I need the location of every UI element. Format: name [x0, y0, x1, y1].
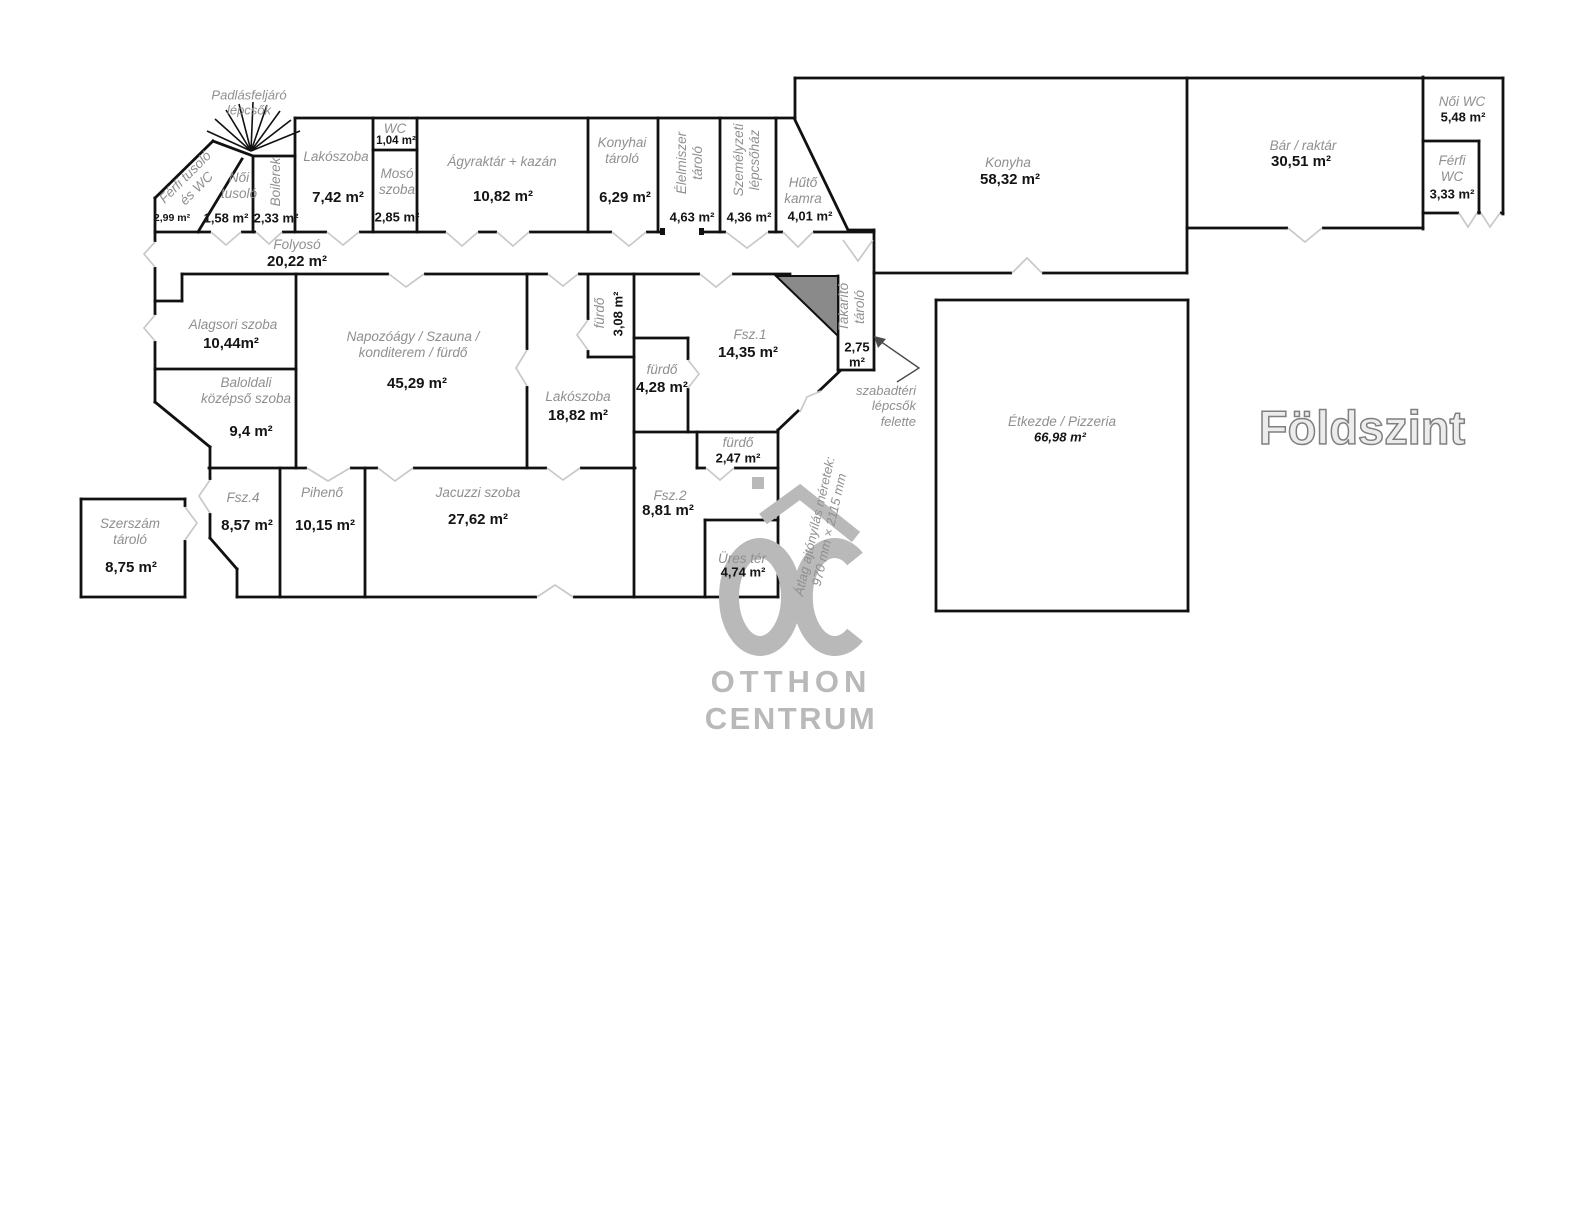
room-area-jacuzzi-szoba: 27,62 m²	[448, 511, 508, 529]
room-area-bar-raktar: 30,51 m²	[1271, 153, 1331, 171]
room-area-ferfi-tusolo: 2,99 m²	[154, 212, 190, 224]
room-name-noi-wc: Női WC	[1439, 94, 1486, 110]
room-name-elelmiszer-tarolo: Élelmiszer tároló	[674, 132, 706, 194]
room-area-noi-wc: 5,48 m²	[1441, 109, 1486, 124]
room-area-furdo-3: 2,47 m²	[716, 450, 761, 465]
watermark-line2: CENTRUM	[705, 701, 878, 736]
room-name-bar-raktar: Bár / raktár	[1270, 138, 1337, 154]
room-name-konyha: Konyha	[985, 155, 1031, 171]
room-area-piheno: 10,15 m²	[295, 517, 355, 535]
room-area-furdo-2: 4,28 m²	[636, 379, 688, 397]
room-name-jacuzzi-szoba: Jacuzzi szoba	[436, 485, 521, 501]
floor-title: Földszint	[1259, 401, 1466, 454]
room-area-konyhai-tarolo: 6,29 m²	[599, 189, 651, 207]
room-name-alagsori-szoba: Alagsori szoba	[189, 317, 278, 333]
room-area-wc: 1,04 m²	[376, 135, 416, 149]
stairs-shaded-triangle	[776, 276, 838, 336]
room-area-huto-kamra: 4,01 m²	[788, 208, 833, 223]
room-area-napozoagy-szauna: 45,29 m²	[387, 375, 447, 393]
room-name-huto-kamra: Hűtő kamra	[784, 175, 822, 207]
room-area-ferfi-wc: 3,33 m²	[1430, 186, 1475, 201]
floor-plan: OTTHON CENTRUM Földszint Férfi tusoló és…	[0, 0, 1584, 1224]
room-area-lakoszoba-2: 18,82 m²	[548, 407, 608, 425]
room-area-fsz4: 8,57 m²	[221, 517, 273, 535]
room-name-baloldali-kozepso: Baloldali középső szoba	[201, 375, 291, 407]
room-name-szemelyzeti-lepcsohaz: Személyzeti lépcsőház	[731, 124, 763, 197]
room-area-szemelyzeti-lepcsohaz: 4,36 m²	[727, 209, 772, 224]
watermark-line1: OTTHON	[711, 664, 872, 699]
otthon-centrum-watermark: OTTHON CENTRUM	[705, 477, 878, 736]
room-name-moso-szoba: Mosó szoba	[379, 166, 415, 198]
room-area-moso-szoba: 2,85 m²	[375, 209, 420, 224]
room-name-fsz1: Fsz.1	[733, 327, 766, 343]
room-area-alagsori-szoba: 10,44m²	[203, 335, 259, 353]
room-area-ures-ter: 4,74 m²	[721, 564, 766, 579]
room-name-noi-tusolo: Női tusoló	[221, 170, 257, 202]
room-area-elelmiszer-tarolo: 4,63 m²	[670, 209, 715, 224]
room-name-lakoszoba-1: Lakószoba	[303, 149, 368, 165]
room-area-szerszam-tarolo: 8,75 m²	[105, 559, 157, 577]
room-area-konyha: 58,32 m²	[980, 171, 1040, 189]
room-area-agyraktar: 10,82 m²	[473, 188, 533, 206]
room-name-fsz4: Fsz.4	[226, 490, 259, 506]
room-name-folyoso: Folyosó	[273, 237, 320, 253]
room-area-folyoso: 20,22 m²	[267, 253, 327, 271]
room-name-agyraktar: Ágyraktár + kazán	[447, 154, 556, 170]
room-area-etkezde-pizzeria: 66,98 m²	[1034, 429, 1086, 444]
room-name-piheno: Pihenő	[301, 485, 343, 501]
room-name-lakoszoba-2: Lakószoba	[545, 389, 610, 405]
outdoor-stairs-note: szabadtéri lépcsők felette	[856, 383, 916, 429]
room-area-noi-tusolo: 1,58 m²	[204, 210, 249, 225]
room-area-baloldali-kozepso: 9,4 m²	[229, 423, 272, 441]
room-name-ferfi-wc: Férfi WC	[1439, 153, 1466, 185]
room-area-fsz2: 8,81 m²	[642, 502, 694, 520]
room-area-furdo-1: 3,08 m²	[610, 292, 625, 337]
room-name-etkezde-pizzeria: Étkezde / Pizzeria	[1008, 414, 1116, 430]
room-name-furdo-2: fürdő	[647, 362, 678, 378]
room-name-takarito-tarolo: Takarító tároló	[836, 283, 868, 331]
room-name-szerszam-tarolo: Szerszám tároló	[100, 516, 160, 548]
room-area-takarito-tarolo: 2,75 m²	[844, 340, 869, 371]
attic-stairs-note: Padlásfeljáró lépcsők	[211, 88, 286, 119]
room-name-furdo-1: fürdő	[592, 298, 608, 329]
room-name-konyhai-tarolo: Konyhai tároló	[598, 135, 647, 167]
room-area-boilerek: 2,33 m²	[254, 210, 299, 225]
room-name-napozoagy-szauna: Napozóágy / Szauna / konditerem / fürdő	[347, 329, 480, 361]
room-name-furdo-3: fürdő	[723, 435, 754, 451]
room-area-fsz1: 14,35 m²	[718, 344, 778, 362]
room-name-boilerek: Boilerek	[268, 158, 284, 207]
room-area-lakoszoba-1: 7,42 m²	[312, 189, 364, 207]
outdoor-stairs-arrow	[874, 336, 919, 382]
logo-chimney-icon	[752, 477, 764, 489]
